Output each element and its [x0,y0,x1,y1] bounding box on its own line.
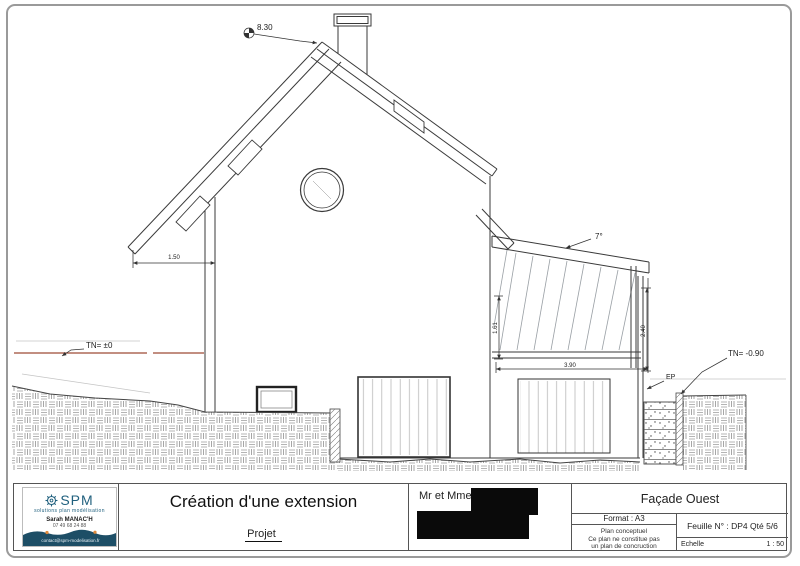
project-title: Création d'une extension [119,492,408,512]
sheet: 8.30 7° TN= ±0 TN= -0.90 EP 1.50 3.90 1.… [0,0,800,566]
sheet-number: Feuille N° : DP4 Qté 5/6 [677,514,788,538]
dim-ext-height-left-label: 1.61 [493,322,499,334]
dim-overhang-label: 1.50 [168,255,180,261]
contact-email: contact@spm-modelisation.fr [23,538,117,543]
garage-door-right [518,379,610,453]
scale-label: Echelle [681,541,704,548]
title-block-client-cell: Mr et Mme [409,484,572,550]
roof-angle-leader [566,239,591,248]
tn-right-leader [681,358,727,394]
basement-window [257,387,296,412]
format-disclaimer-cell: Format : A3 Plan conceptuel Ce plan ne c… [572,514,677,550]
ground-strip [338,459,640,471]
company-tagline: solutions plan modélisation [23,508,116,514]
ep-leader [647,381,664,389]
view-title: Façade Ouest [572,484,788,514]
title-block: SPM solutions plan modélisation Sarah MA… [13,483,787,551]
garage-door-left [358,377,450,457]
glazing-hatch [494,250,635,350]
company-card: SPM solutions plan modélisation Sarah MA… [22,487,117,547]
disclaimer-line: un plan de concruction [572,543,676,551]
tn-left-label: TN= ±0 [86,341,113,350]
round-window [301,169,344,212]
disclaimer-line: Ce plan ne constitue pas [572,536,676,544]
format-label: Format : A3 [572,514,676,525]
title-block-project-cell: Création d'une extension Projet [119,484,409,550]
ground-right [682,395,746,470]
project-subtitle: Projet [245,528,282,542]
tn-right-label: TN= -0.90 [728,349,764,358]
elevation-drawing: 8.30 7° TN= ±0 TN= -0.90 EP 1.50 3.90 1.… [0,0,800,566]
ridge-level-marker [244,28,317,43]
gabion-wall [644,393,683,465]
scale-value: 1 : 50 [766,541,784,548]
client-label: Mr et Mme [419,490,472,502]
ep-label: EP [666,374,676,381]
sheet-scale-cell: Feuille N° : DP4 Qté 5/6 Echelle 1 : 50 [677,514,788,550]
dim-ext-width-label: 3.90 [564,363,576,369]
title-block-info-cell: Façade Ouest Format : A3 Plan conceptuel… [572,484,788,550]
title-block-logo-cell: SPM solutions plan modélisation Sarah MA… [14,484,119,550]
hatched-pier [330,409,340,462]
roof-angle-label: 7° [595,232,603,241]
extension [492,236,649,368]
gear-icon [45,494,58,507]
dim-ext-height-right-label: 2.40 [641,325,647,337]
logo-wave [23,526,117,546]
redaction-block [417,511,529,539]
company-name: SPM [60,492,93,508]
downpipe [638,276,643,458]
disclaimer-line: Plan conceptuel [572,528,676,536]
roof-windows [176,100,424,231]
ridge-level-label: 8.30 [257,23,273,32]
